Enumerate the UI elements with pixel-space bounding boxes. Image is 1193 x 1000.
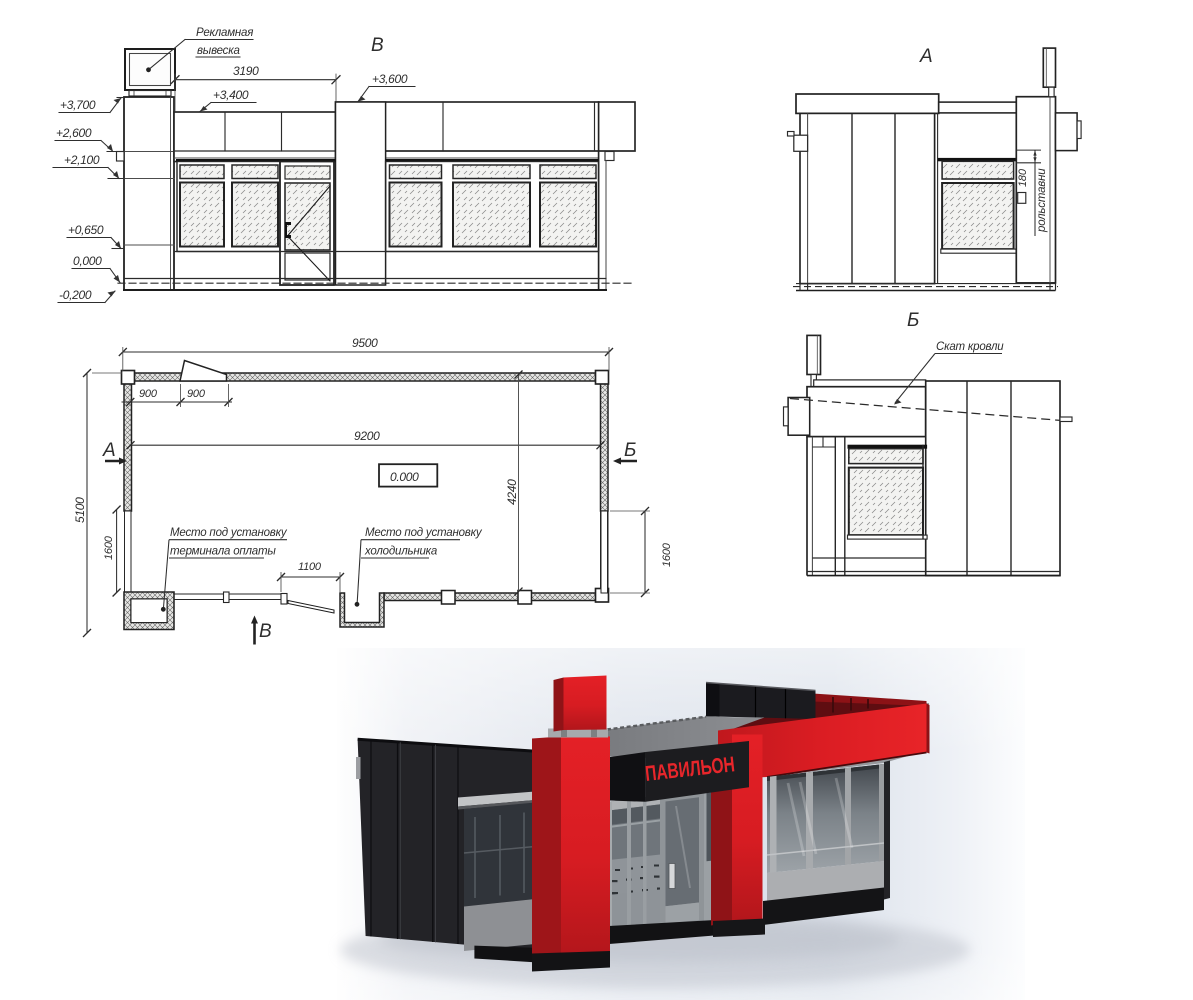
svg-text:рольставни: рольставни: [1036, 168, 1048, 233]
svg-text:900: 900: [139, 388, 158, 400]
svg-text:9500: 9500: [352, 336, 378, 350]
svg-text:1600: 1600: [103, 535, 115, 560]
svg-text:А: А: [919, 46, 933, 67]
svg-text:5100: 5100: [73, 497, 87, 523]
svg-text:+0,650: +0,650: [68, 223, 104, 237]
svg-text:180: 180: [1017, 168, 1029, 187]
svg-text:9200: 9200: [354, 429, 380, 443]
svg-text:Б: Б: [907, 310, 919, 331]
svg-text:3190: 3190: [233, 64, 259, 78]
svg-text:+2,100: +2,100: [64, 153, 100, 167]
svg-text:Место под установку: Место под установку: [365, 527, 483, 539]
svg-text:4240: 4240: [505, 479, 519, 505]
svg-text:Б: Б: [624, 440, 636, 461]
svg-text:Скат кровли: Скат кровли: [936, 341, 1004, 353]
svg-text:+2,600: +2,600: [56, 126, 92, 140]
svg-text:В: В: [371, 35, 384, 56]
svg-text:+3,400: +3,400: [213, 88, 249, 102]
svg-text:-0,200: -0,200: [59, 288, 92, 302]
svg-text:1100: 1100: [298, 561, 322, 573]
svg-text:900: 900: [187, 388, 206, 400]
svg-text:+3,600: +3,600: [372, 72, 408, 86]
svg-text:А: А: [102, 440, 116, 461]
svg-text:холодильника: холодильника: [364, 546, 437, 558]
svg-text:+3,700: +3,700: [60, 98, 96, 112]
svg-text:Место под установку: Место под установку: [170, 527, 288, 539]
svg-text:0,000: 0,000: [73, 254, 102, 268]
svg-text:0.000: 0.000: [390, 470, 419, 484]
svg-text:терминала оплаты: терминала оплаты: [170, 546, 276, 558]
svg-text:В: В: [259, 621, 272, 642]
svg-text:Рекламная: Рекламная: [196, 27, 253, 39]
svg-text:1600: 1600: [661, 542, 673, 567]
svg-text:вывеска: вывеска: [197, 45, 240, 57]
